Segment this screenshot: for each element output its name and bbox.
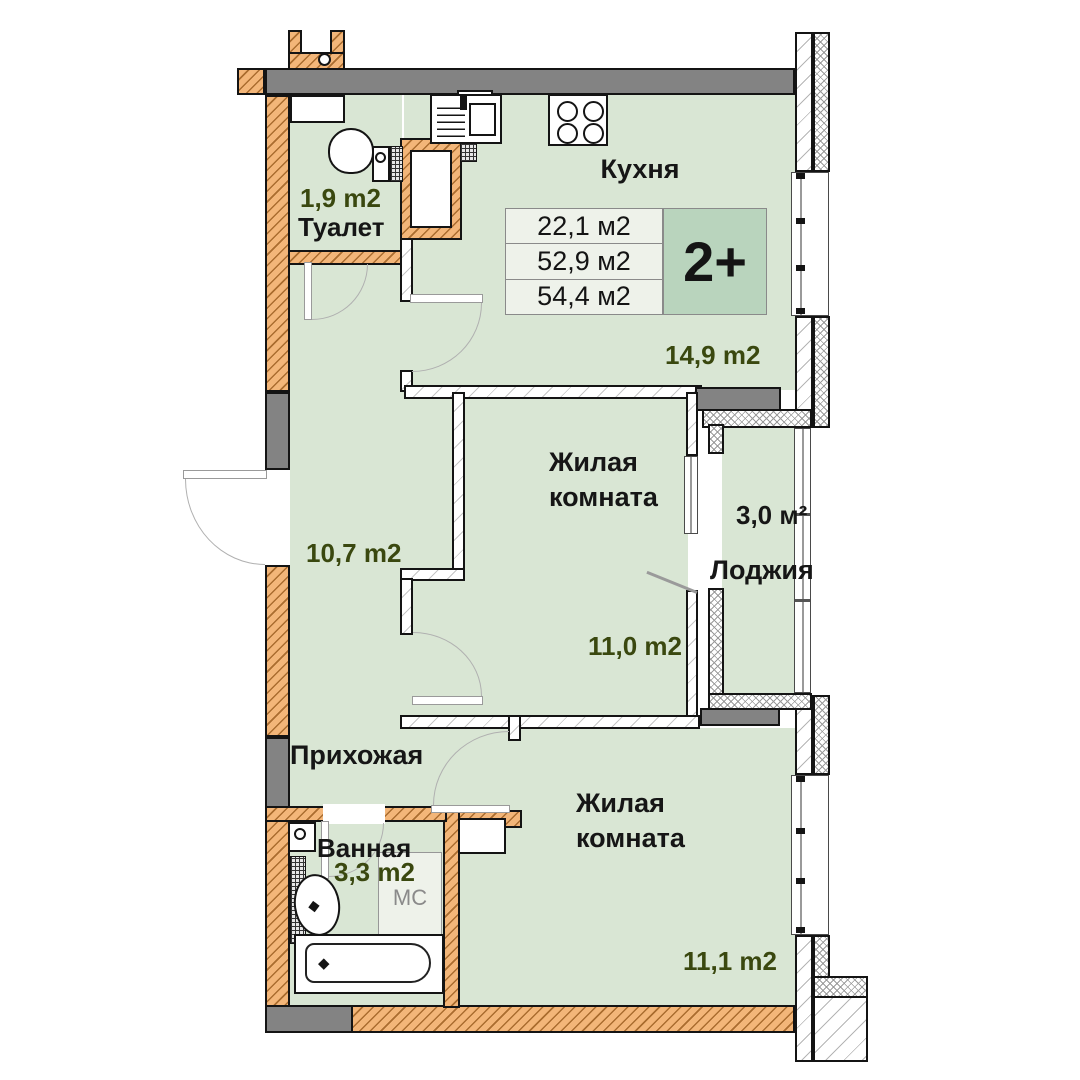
room-label-living-mid: Жилая комната — [549, 445, 709, 515]
wall — [795, 32, 813, 172]
wall — [452, 392, 465, 572]
room-area-hallway: 10,7 m2 — [306, 538, 401, 569]
burner-icon — [583, 101, 604, 122]
window-tick — [796, 776, 805, 782]
duct-shaft — [410, 150, 452, 228]
door-arc — [185, 479, 265, 565]
wall — [351, 1005, 795, 1033]
window-kitchen — [791, 172, 829, 316]
room-area-living-mid: 11,0 m2 — [588, 631, 682, 662]
room-area-loggia: 3,0 м² — [736, 498, 807, 533]
wall — [400, 238, 413, 302]
bathtub-icon: ◆ — [294, 934, 444, 994]
stove-icon — [548, 94, 608, 146]
wall — [708, 588, 724, 695]
sink-basin — [469, 103, 496, 136]
window-tick — [796, 927, 805, 933]
wall — [265, 737, 290, 810]
door-gap — [323, 804, 385, 824]
wall — [795, 935, 813, 1062]
window-tick — [796, 173, 805, 179]
window-living-bottom — [791, 775, 829, 935]
area-row-usable: 52,9 м2 — [506, 243, 662, 278]
entrance-door — [183, 470, 267, 479]
sink-tap — [460, 96, 467, 110]
vent-icon — [294, 828, 306, 840]
vent-icon — [318, 53, 331, 66]
wall — [695, 387, 781, 411]
areas-table: 22,1 м2 52,9 м2 54,4 м2 — [505, 208, 663, 315]
tap-icon: ◆ — [307, 898, 321, 914]
room-area-bathroom: 3,3 m2 — [334, 857, 415, 888]
wall — [400, 715, 700, 729]
room-label-living-bottom: Жилая комната — [576, 786, 746, 856]
wall — [813, 935, 830, 978]
wall — [237, 68, 265, 95]
living-bottom-door — [431, 805, 510, 813]
window-tick — [796, 265, 805, 271]
burner-icon — [557, 123, 578, 144]
room-label-hallway: Прихожая — [290, 738, 423, 773]
wall — [265, 392, 290, 470]
room-area-living-bottom: 11,1 m2 — [683, 946, 777, 977]
closet-box — [458, 818, 506, 854]
wall — [686, 590, 698, 717]
wall — [265, 95, 290, 392]
wall — [708, 424, 724, 454]
toilet-door — [304, 262, 312, 320]
wall — [813, 316, 830, 428]
wall — [265, 565, 290, 737]
vent-icon — [375, 152, 386, 163]
toilet-icon — [328, 128, 374, 174]
room-label-kitchen: Кухня — [575, 152, 705, 187]
wall — [813, 996, 868, 1062]
wall — [265, 810, 290, 1008]
room-label-toilet: Туалет — [298, 210, 385, 245]
window-tick — [796, 878, 805, 884]
room-label-loggia: Лоджия — [710, 553, 814, 588]
wall — [813, 976, 868, 998]
duct-box — [290, 95, 345, 123]
window-glass — [800, 173, 802, 315]
window-tick — [796, 308, 805, 314]
area-row-living: 22,1 м2 — [506, 209, 662, 243]
wall — [400, 578, 413, 635]
sink-icon — [430, 94, 502, 144]
wall — [813, 695, 830, 775]
vent-grid — [390, 146, 403, 182]
kitchen-door — [410, 294, 483, 303]
wall — [404, 385, 702, 399]
living-mid-door — [412, 696, 483, 705]
wall — [700, 708, 780, 726]
burner-icon — [557, 101, 578, 122]
wall — [508, 715, 521, 741]
washing-machine-label: МС — [393, 885, 427, 911]
wall — [813, 32, 830, 172]
area-row-total: 54,4 м2 — [506, 279, 662, 314]
burner-icon — [583, 123, 604, 144]
window-tick — [796, 218, 805, 224]
drain-icon: ◆ — [318, 956, 330, 971]
room-area-kitchen: 14,9 m2 — [665, 340, 760, 371]
glazing-bar — [795, 599, 810, 602]
floor-plan: ◆ МС ◆ 1,9 m2 Туалет Кухня 14,9 m2 22,1 … — [0, 0, 1080, 1080]
window-glass — [800, 776, 802, 934]
wall — [265, 68, 795, 95]
unit-type-badge: 2+ — [663, 208, 767, 315]
window-tick — [796, 828, 805, 834]
wall — [265, 1005, 353, 1033]
